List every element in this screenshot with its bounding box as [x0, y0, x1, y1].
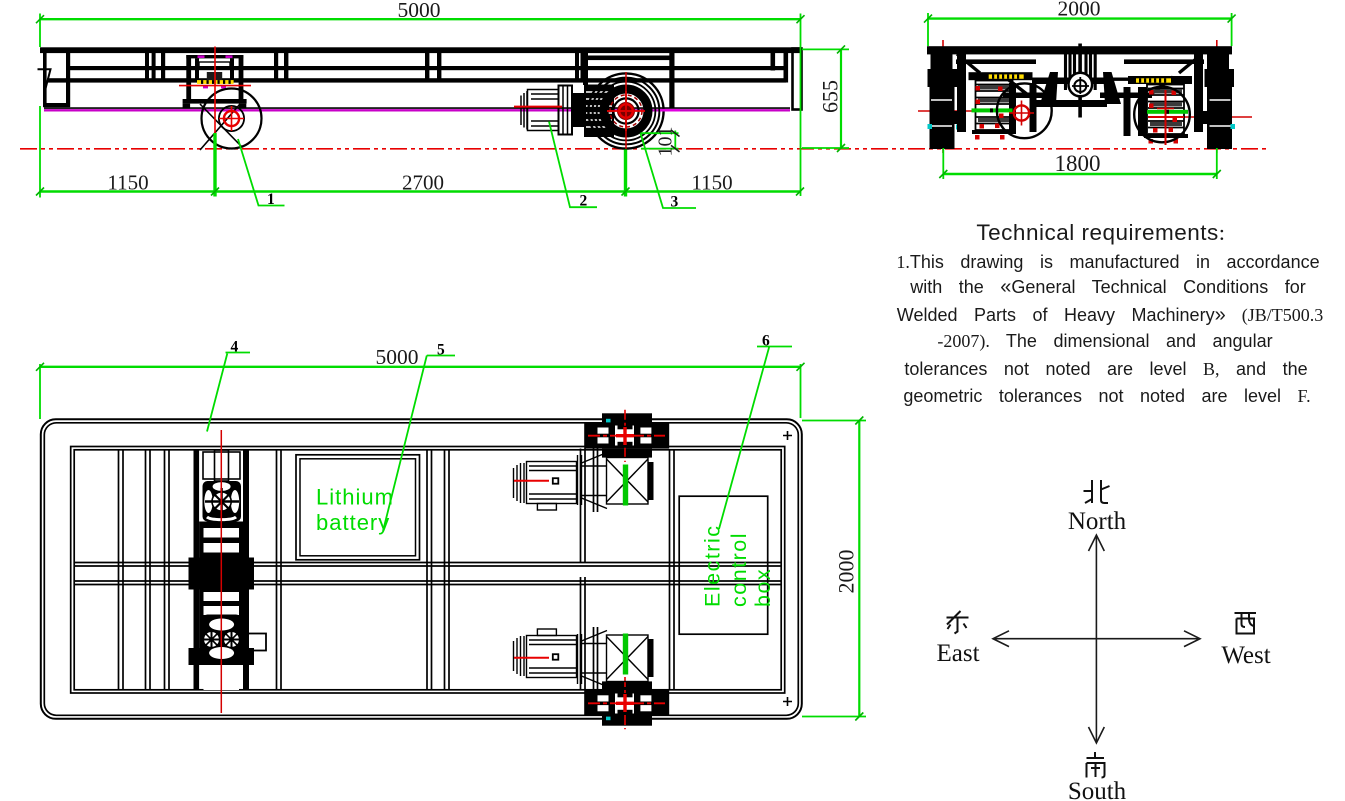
svg-text:with the «General Technical Co: with the «General Technical Conditions f…	[909, 276, 1306, 298]
svg-text:5: 5	[437, 342, 445, 359]
svg-text:1.This drawing is manufactured: 1.This drawing is manufactured in accord…	[896, 252, 1319, 272]
svg-text:control: control	[727, 532, 751, 607]
svg-text:Lithium: Lithium	[316, 485, 394, 510]
svg-text:4: 4	[231, 339, 239, 356]
svg-text:Welded Parts of Heavy Machiner: Welded Parts of Heavy Machinery» (JB/T50…	[897, 304, 1323, 326]
svg-text:2: 2	[580, 193, 588, 210]
svg-text:2000: 2000	[1058, 0, 1101, 21]
svg-text:1150: 1150	[107, 171, 148, 195]
svg-text:101: 101	[655, 127, 677, 157]
svg-text:655: 655	[818, 80, 843, 113]
svg-text:5000: 5000	[398, 0, 441, 22]
svg-text:tolerances not noted are level: tolerances not noted are level B, and th…	[904, 359, 1307, 379]
svg-text:1150: 1150	[691, 171, 732, 195]
svg-text:2700: 2700	[402, 171, 444, 195]
svg-text:South: South	[1068, 778, 1127, 801]
svg-text:North: North	[1068, 508, 1127, 535]
svg-text:2000: 2000	[834, 550, 859, 594]
svg-text:box: box	[751, 568, 775, 607]
svg-text:1800: 1800	[1055, 151, 1101, 176]
svg-text:battery: battery	[316, 510, 390, 535]
svg-text:-2007). The dimensional and an: -2007). The dimensional and angular	[937, 331, 1272, 352]
svg-text:East: East	[936, 640, 979, 667]
svg-text:geometric tolerances not noted: geometric tolerances not noted are level…	[903, 386, 1310, 406]
svg-text:West: West	[1221, 642, 1270, 669]
svg-text:5000: 5000	[376, 345, 419, 369]
svg-text:Technical requirements:: Technical requirements:	[976, 220, 1225, 245]
svg-text:1: 1	[267, 191, 275, 208]
svg-text:6: 6	[762, 333, 770, 350]
svg-text:3: 3	[671, 194, 679, 211]
svg-text:Electric: Electric	[701, 525, 725, 607]
